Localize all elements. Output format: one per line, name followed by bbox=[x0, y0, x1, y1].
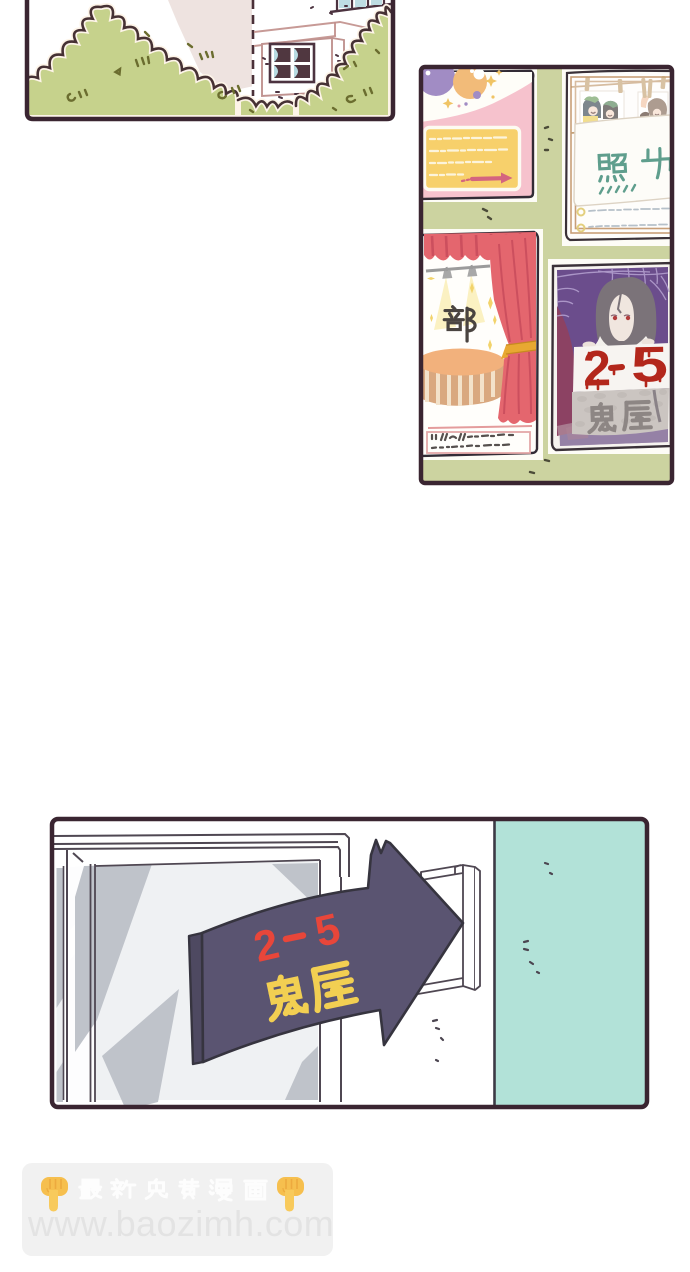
svg-text:www.baozimh.com: www.baozimh.com bbox=[27, 1203, 334, 1244]
svg-text:5: 5 bbox=[630, 336, 668, 393]
